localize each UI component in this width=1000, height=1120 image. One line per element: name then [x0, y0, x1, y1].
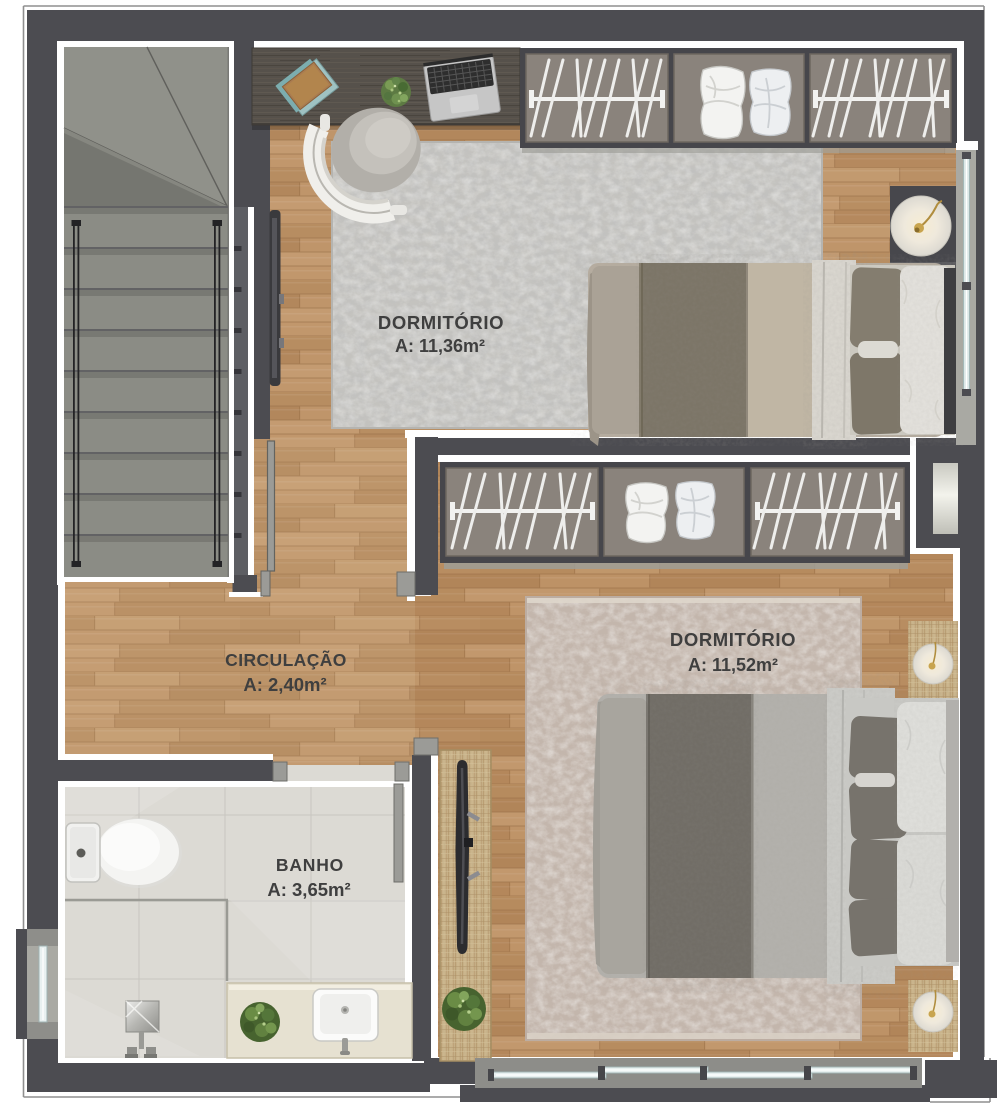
svg-text:CIRCULAÇÃO: CIRCULAÇÃO	[225, 649, 347, 670]
svg-text:BANHO: BANHO	[276, 855, 344, 875]
svg-text:A: 3,65m²: A: 3,65m²	[267, 879, 350, 900]
svg-text:A: 2,40m²: A: 2,40m²	[243, 674, 326, 695]
svg-text:A: 11,36m²: A: 11,36m²	[395, 336, 485, 356]
svg-text:DORMITÓRIO: DORMITÓRIO	[670, 629, 796, 650]
svg-text:A: 11,52m²: A: 11,52m²	[688, 655, 778, 675]
svg-text:DORMITÓRIO: DORMITÓRIO	[378, 312, 504, 333]
